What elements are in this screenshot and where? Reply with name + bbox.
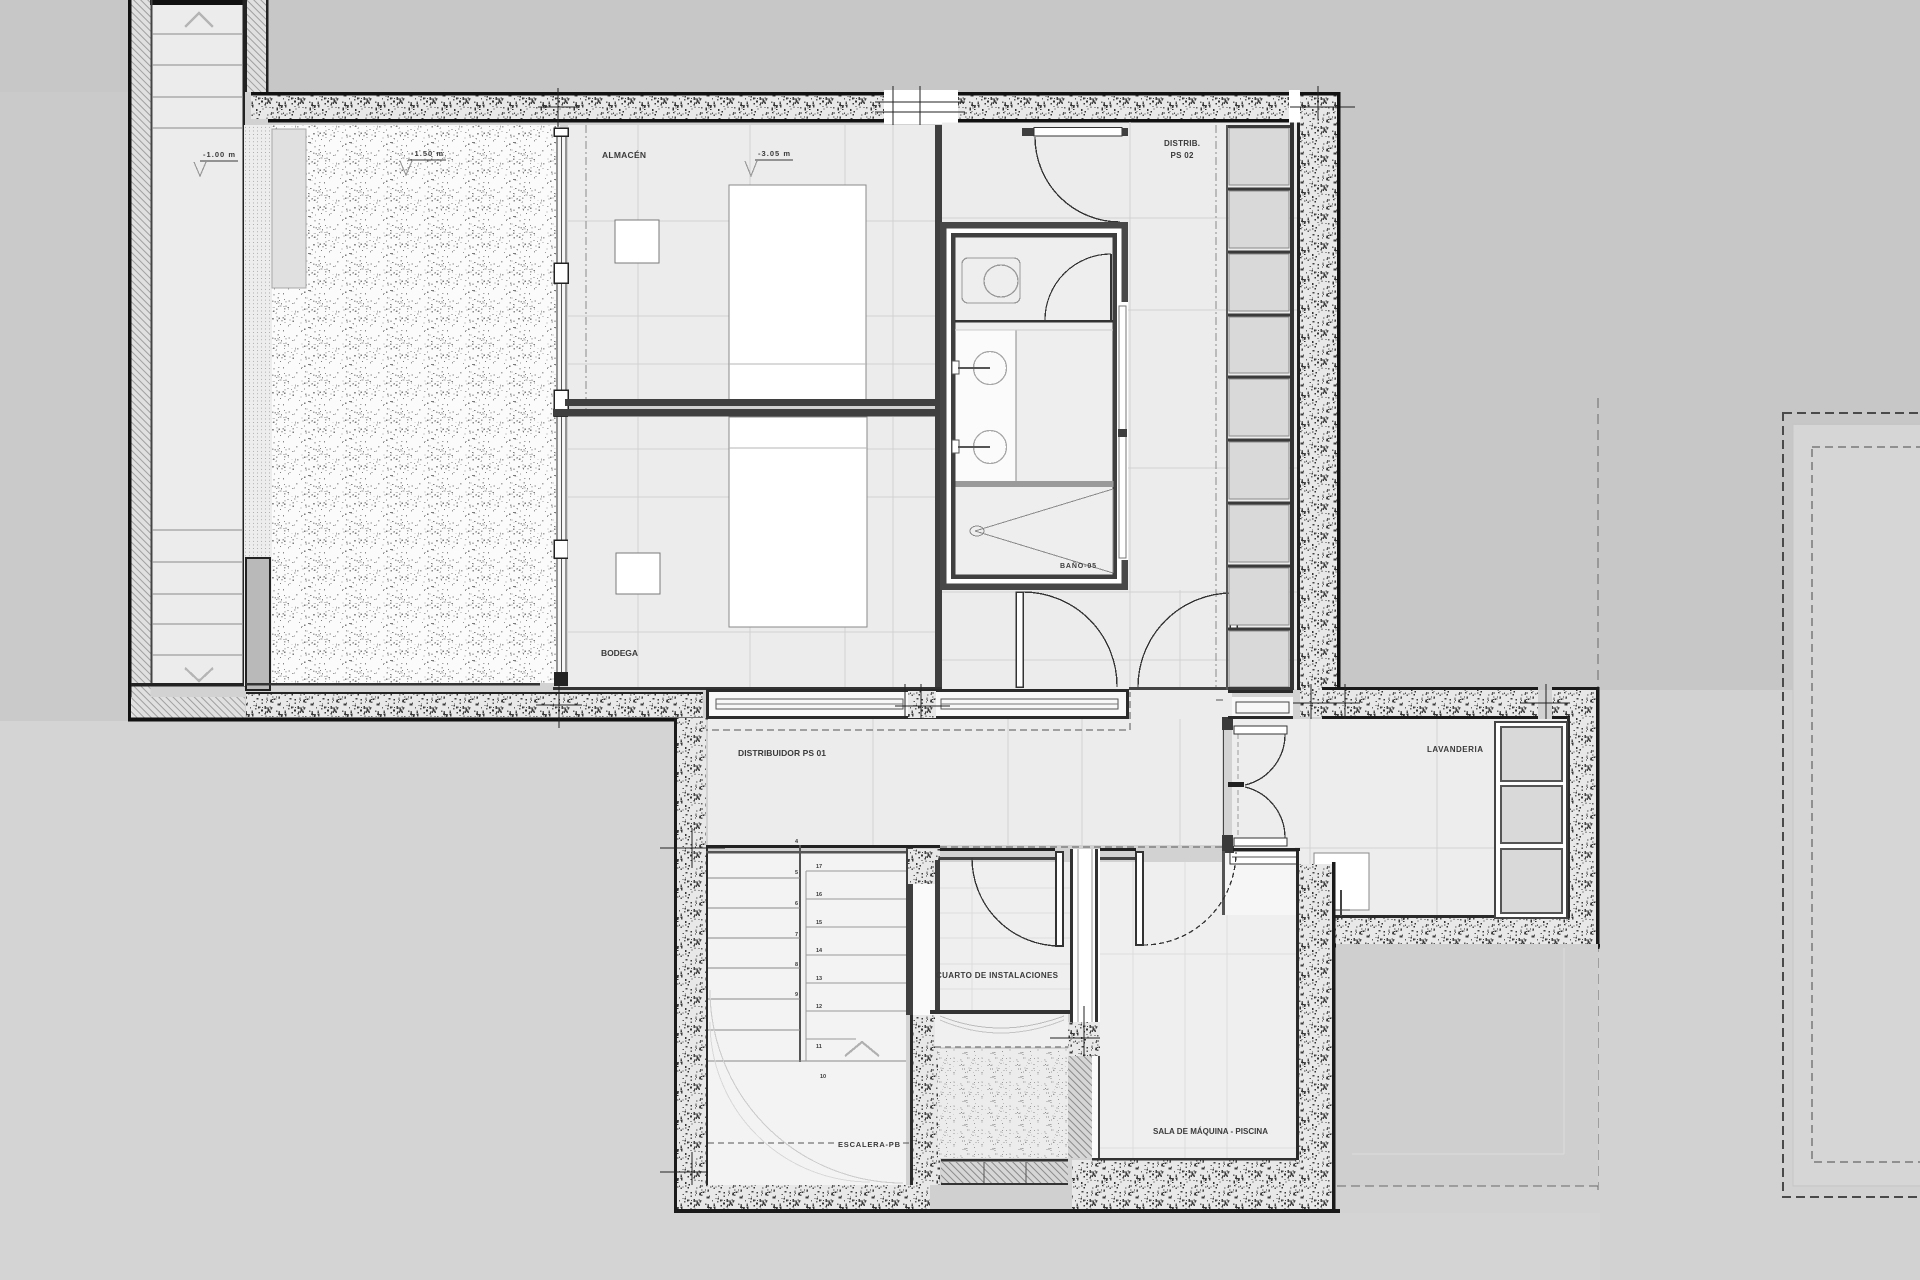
svg-text:8: 8 <box>795 962 798 968</box>
svg-text:17: 17 <box>816 864 822 870</box>
svg-text:15: 15 <box>816 920 822 926</box>
svg-text:7: 7 <box>795 932 798 938</box>
svg-text:SALA DE MÁQUINA - PISCINA: SALA DE MÁQUINA - PISCINA <box>1153 1127 1268 1136</box>
svg-text:DISTRIBUIDOR PS 01: DISTRIBUIDOR PS 01 <box>738 748 826 758</box>
svg-text:6: 6 <box>795 901 798 907</box>
svg-text:DISTRIB.: DISTRIB. <box>1164 139 1200 148</box>
svg-text:13: 13 <box>816 976 822 982</box>
svg-text:-1.50 m: -1.50 m <box>411 149 443 158</box>
svg-text:LAVANDERIA: LAVANDERIA <box>1427 745 1483 754</box>
svg-text:9: 9 <box>795 992 798 998</box>
svg-text:BODEGA: BODEGA <box>601 648 638 658</box>
svg-text:16: 16 <box>816 892 822 898</box>
svg-text:BAÑO-05: BAÑO-05 <box>1060 561 1096 570</box>
svg-text:10: 10 <box>820 1074 826 1080</box>
svg-text:CUARTO DE INSTALACIONES: CUARTO DE INSTALACIONES <box>936 971 1059 980</box>
svg-text:PS 02: PS 02 <box>1171 151 1195 160</box>
svg-text:-3.05 m: -3.05 m <box>758 149 790 158</box>
svg-text:14: 14 <box>816 948 823 954</box>
svg-text:ESCALERA-PB: ESCALERA-PB <box>838 1140 901 1149</box>
svg-text:ALMACÉN: ALMACÉN <box>602 150 646 160</box>
svg-text:-1.00 m: -1.00 m <box>203 150 235 159</box>
svg-text:11: 11 <box>816 1044 822 1050</box>
svg-text:5: 5 <box>795 870 798 876</box>
svg-text:12: 12 <box>816 1004 822 1010</box>
